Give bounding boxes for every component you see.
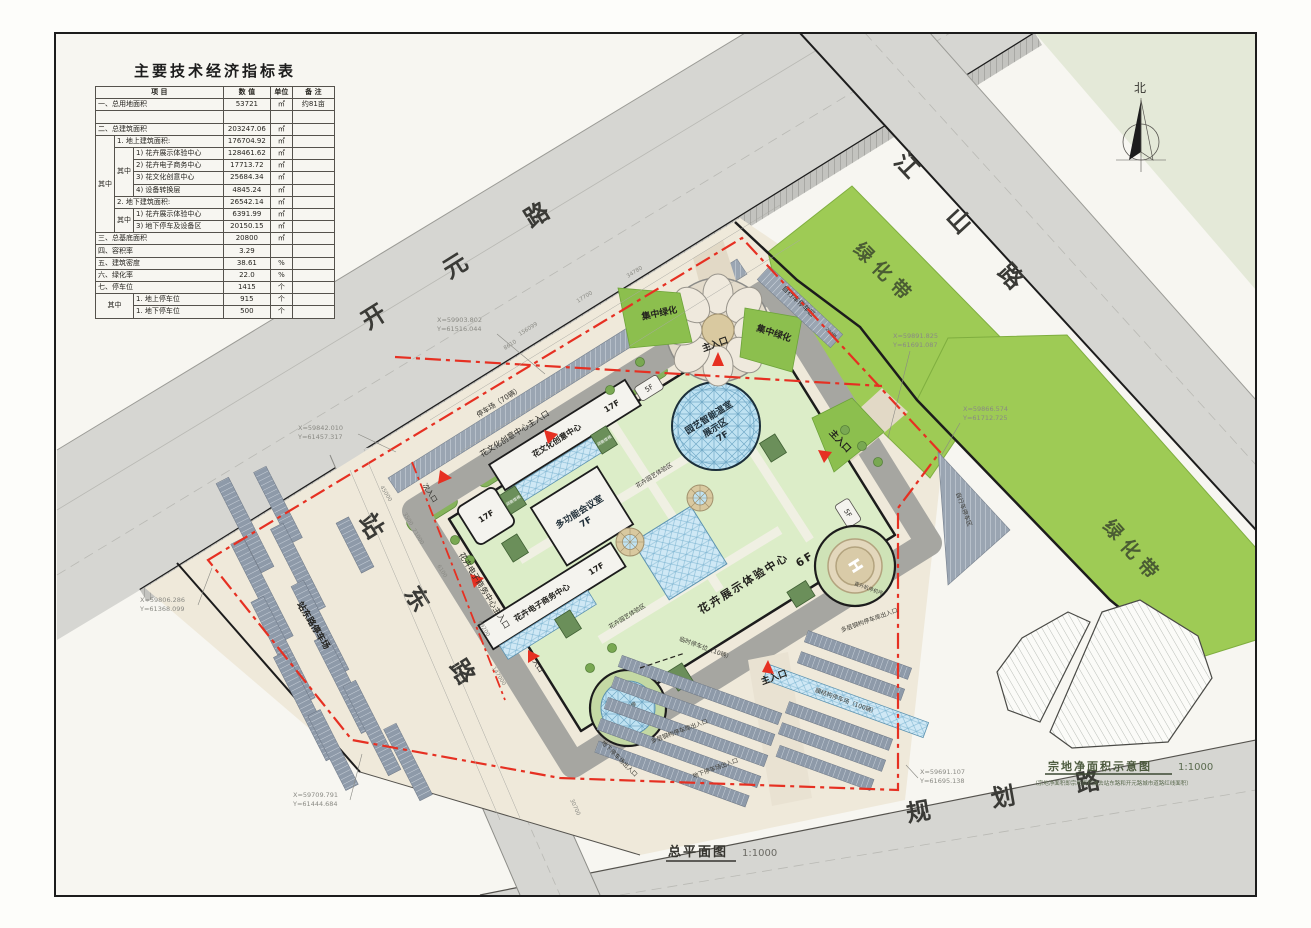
master-title: 总平面图 xyxy=(668,844,728,860)
coord-6-x: X=59709.791 xyxy=(293,791,338,799)
parcel-note: （宗地净面积即宗地面积减去站东路和开元路城市道路红线面积） xyxy=(1032,779,1192,787)
coord-4-y: Y=61457.317 xyxy=(297,433,343,441)
table-row: 五、建筑密度38.61% xyxy=(96,257,335,269)
col-unit: 单位 xyxy=(271,87,293,99)
greenhouse-dome: 园艺智能温室 展示区 7F xyxy=(672,382,760,470)
coord-5-x: X=59806.286 xyxy=(140,596,185,604)
coord-1-y: Y=61516.044 xyxy=(436,325,482,333)
coord-7-y: Y=61695.138 xyxy=(919,777,965,785)
table-row: 二、总建筑面积203247.06㎡ xyxy=(96,123,335,135)
coord-7-x: X=59691.107 xyxy=(920,768,965,776)
coord-1-x: X=59903.802 xyxy=(437,316,482,324)
qizhong-inner-2: 其中 xyxy=(115,208,134,232)
coord-5-y: Y=61368.099 xyxy=(139,605,185,613)
table-row: 其中1) 花卉展示体验中心128461.62㎡ xyxy=(96,147,335,159)
fountain-circle-b xyxy=(616,528,644,556)
table-title: 主要技术经济指标表 xyxy=(95,58,335,86)
table-row: 七、停车位1415个 xyxy=(96,282,335,294)
north-label: 北 xyxy=(1134,81,1146,95)
table-header-row: 项 目 数 值 单位 备 注 xyxy=(96,87,335,99)
col-item: 项 目 xyxy=(96,87,224,99)
table-row: 其中1. 地上建筑面积:176704.92㎡ xyxy=(96,135,335,147)
qizhong-parking: 其中 xyxy=(96,294,134,318)
table-row: 其中1) 花卉展示体验中心6391.99㎡ xyxy=(96,208,335,220)
parcel-scale: 1:1000 xyxy=(1178,762,1213,773)
col-value: 数 值 xyxy=(223,87,270,99)
table-row: 四、容积率3.29 xyxy=(96,245,335,257)
qizhong-inner-1: 其中 xyxy=(115,147,134,196)
table-row xyxy=(96,111,335,123)
table-row: 三、总基底面积20800㎡ xyxy=(96,233,335,245)
indicators-table: 主要技术经济指标表 项 目 数 值 单位 备 注 一、总用地面积53721㎡约8… xyxy=(95,58,335,319)
drawing-sheet: 站东路停车场 停车场（70辆） 多功能会议室7F 花 xyxy=(0,0,1311,928)
table-row: 六、绿化率22.0% xyxy=(96,269,335,281)
helipad: H 直升机停机坪 xyxy=(815,526,895,606)
coord-4-x: X=59842.010 xyxy=(298,424,343,432)
fountain-circle-a xyxy=(687,485,713,511)
table-row: 2. 地下建筑面积:26542.14㎡ xyxy=(96,196,335,208)
qizhong-outer: 其中 xyxy=(96,135,115,233)
coord-3-x: X=59866.574 xyxy=(963,405,1008,413)
coord-2-y: Y=61691.087 xyxy=(892,341,938,349)
table-row: 其中1. 地上停车位915个 xyxy=(96,294,335,306)
coord-6-y: Y=61444.684 xyxy=(292,800,338,808)
table-row: 一、总用地面积53721㎡约81亩 xyxy=(96,99,335,111)
col-note: 备 注 xyxy=(292,87,334,99)
coord-3-y: Y=61712.725 xyxy=(962,414,1008,422)
parcel-title: 宗地净面积示意图 xyxy=(1048,759,1152,773)
coord-2-x: X=59891.825 xyxy=(893,332,938,340)
master-scale: 1:1000 xyxy=(742,848,777,859)
